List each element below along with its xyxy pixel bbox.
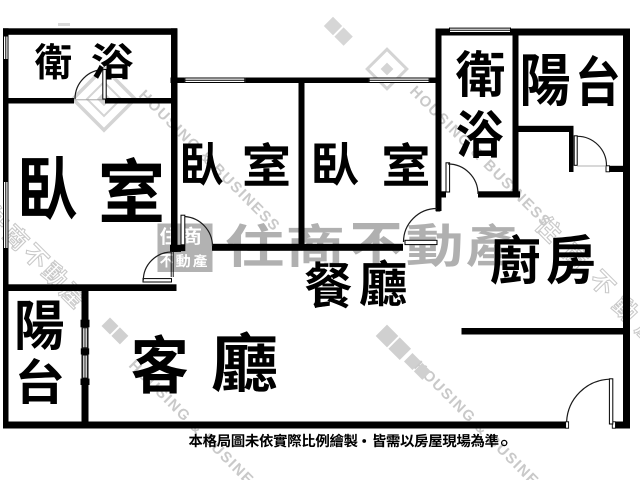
- svg-text:HOUSING & BUSINESS: HOUSING & BUSINESS: [410, 358, 558, 480]
